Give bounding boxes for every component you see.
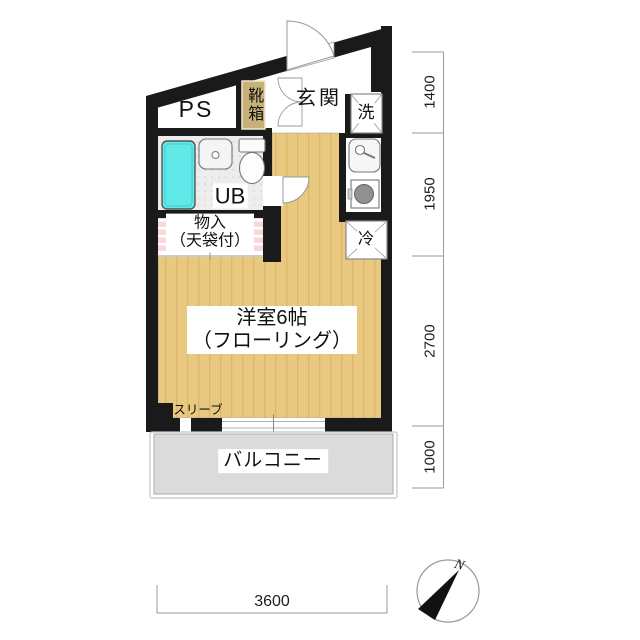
laundry-label: 洗	[357, 103, 376, 123]
wall-closet-right	[263, 206, 281, 262]
kitchen-sink-icon	[349, 139, 380, 172]
sleeve-opening	[180, 418, 191, 432]
toilet-icon	[240, 153, 265, 184]
main-room-label-line2: （フローリング）	[192, 330, 352, 353]
faucet-icon	[356, 146, 365, 155]
closet-label: 物入 （天袋付）	[166, 214, 254, 253]
dimension-line-right	[412, 52, 444, 488]
toilet-tank	[239, 139, 265, 152]
unit-bath-label: UB	[213, 183, 248, 208]
north-arrow-icon	[417, 560, 479, 622]
balcony-label: バルコニー	[218, 449, 328, 473]
burner-icon	[355, 185, 374, 204]
bath-doorway	[263, 176, 283, 206]
wall-bottom-b	[191, 418, 222, 432]
ps-label: PS	[179, 96, 214, 122]
dimension-right-1950: 1950	[421, 177, 438, 210]
dimension-right-1000: 1000	[421, 440, 438, 473]
fridge-label: 冷	[357, 231, 375, 249]
main-room-label: 洋室6帖 （フローリング）	[187, 306, 357, 354]
dimension-right-2700: 2700	[421, 324, 438, 357]
entrance-label: 玄関	[296, 88, 342, 111]
wall-bottom-c	[325, 418, 392, 432]
closet-label-line2: （天袋付）	[170, 233, 250, 251]
wall-kitchen-left	[339, 133, 346, 220]
main-room-label-line1: 洋室6帖	[192, 307, 352, 330]
wall-bottom-a	[146, 418, 180, 432]
wall-bottom-left-post	[146, 403, 173, 420]
washbasin-drain	[212, 152, 219, 159]
wall-left	[146, 98, 158, 432]
dimension-bottom-3600: 3600	[254, 593, 290, 611]
dimension-right-1400: 1400	[421, 75, 438, 108]
bathtub-icon	[162, 141, 195, 209]
closet-label-line1: 物入	[170, 215, 250, 233]
floor-plan-page: PS 靴箱 玄関 洗 UB 物入 （天袋付） 冷 洋室6帖 （フローリング） ス…	[0, 0, 640, 640]
shoe-box-label: 靴箱	[244, 87, 262, 123]
wall-top-right-block	[371, 38, 392, 92]
sleeve-label: スリーブ	[173, 403, 222, 417]
